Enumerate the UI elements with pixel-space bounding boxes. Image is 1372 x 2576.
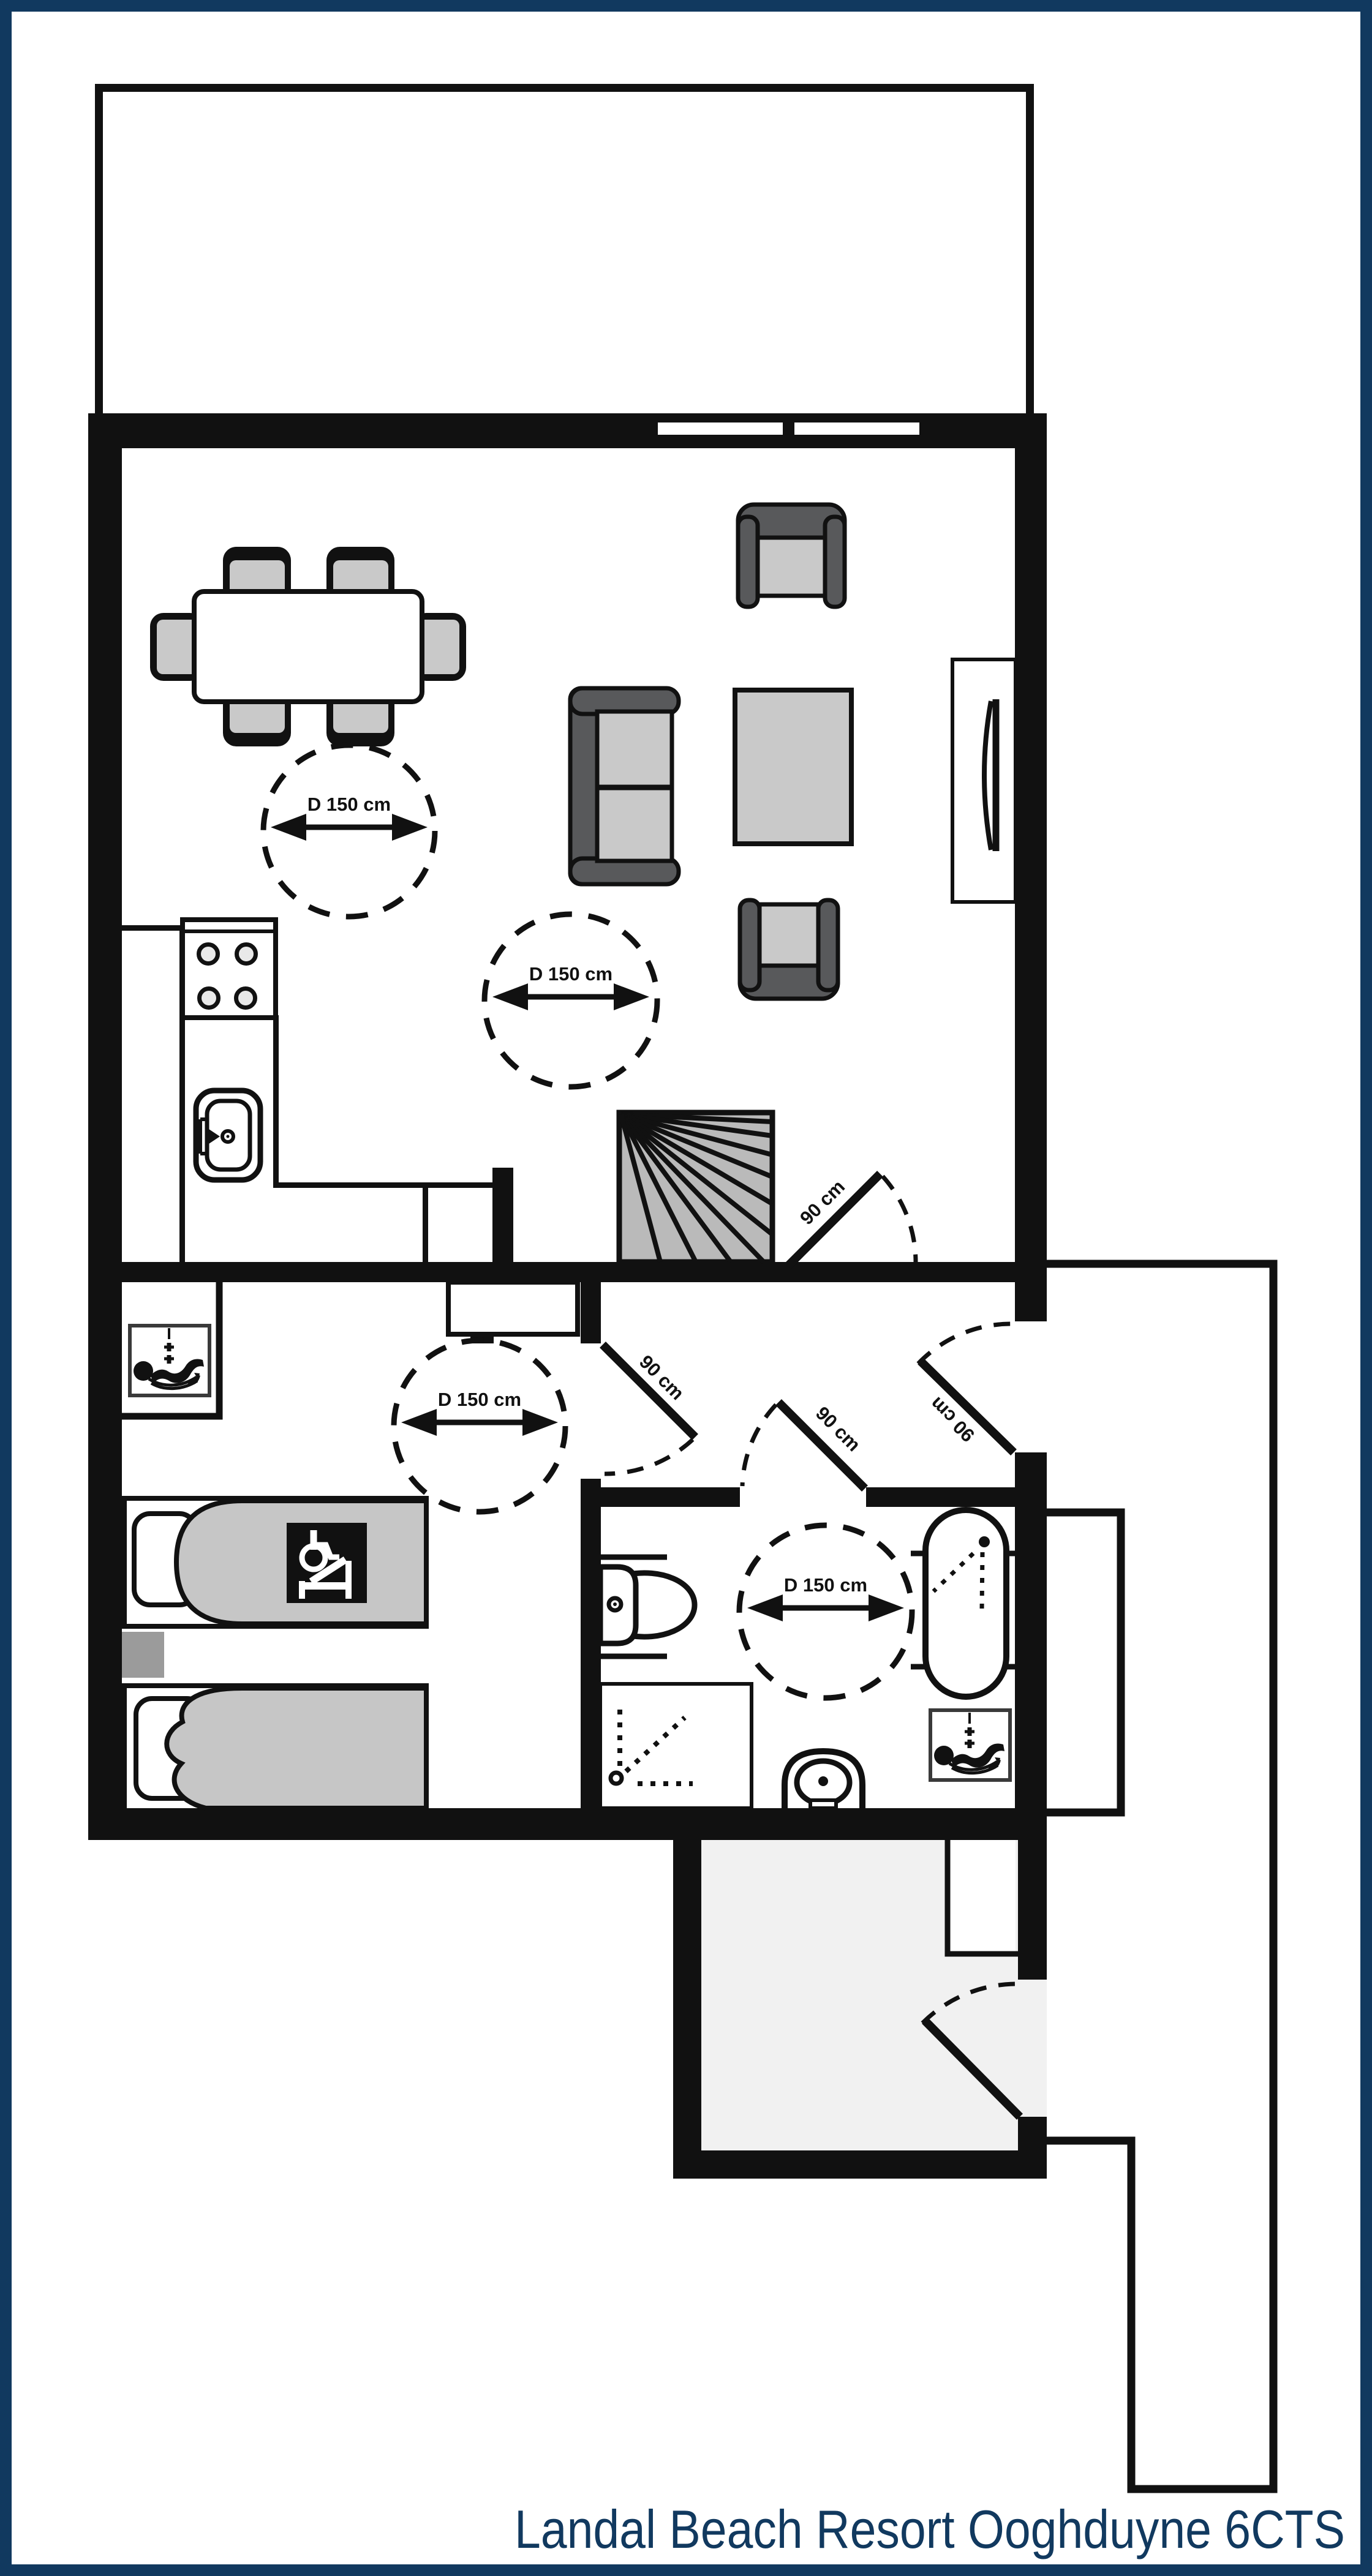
svg-text:D 150 cm: D 150 cm (529, 963, 612, 985)
svg-text:D 150 cm: D 150 cm (784, 1574, 867, 1596)
svg-text:D 150 cm: D 150 cm (307, 794, 391, 815)
svg-text:D 150 cm: D 150 cm (438, 1389, 521, 1410)
svg-text:Landal Beach Resort Ooghduyne: Landal Beach Resort Ooghduyne 6CTS (514, 2499, 1345, 2559)
